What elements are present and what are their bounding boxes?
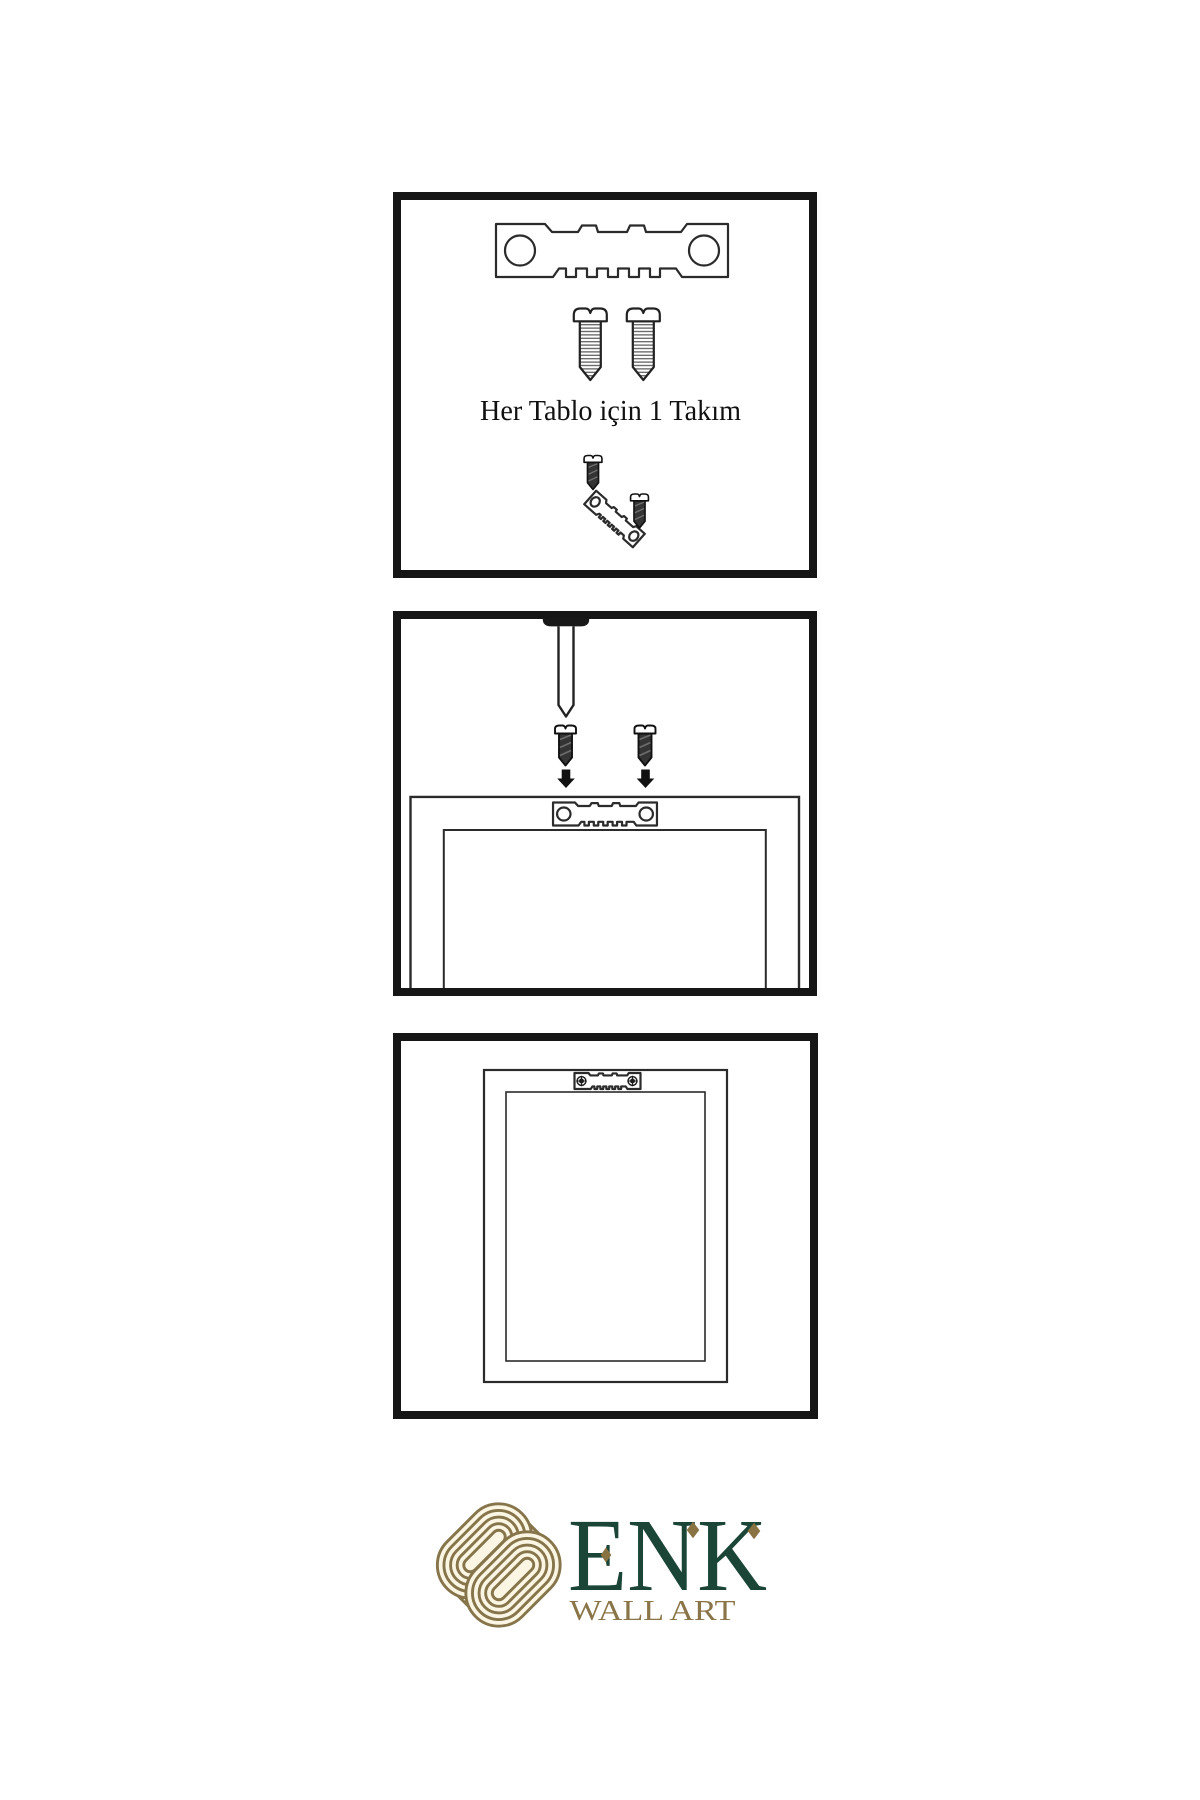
svg-text:WALL ART: WALL ART [570, 1596, 736, 1627]
svg-text:Her Tablo için 1 Takım: Her Tablo için 1 Takım [480, 395, 741, 427]
